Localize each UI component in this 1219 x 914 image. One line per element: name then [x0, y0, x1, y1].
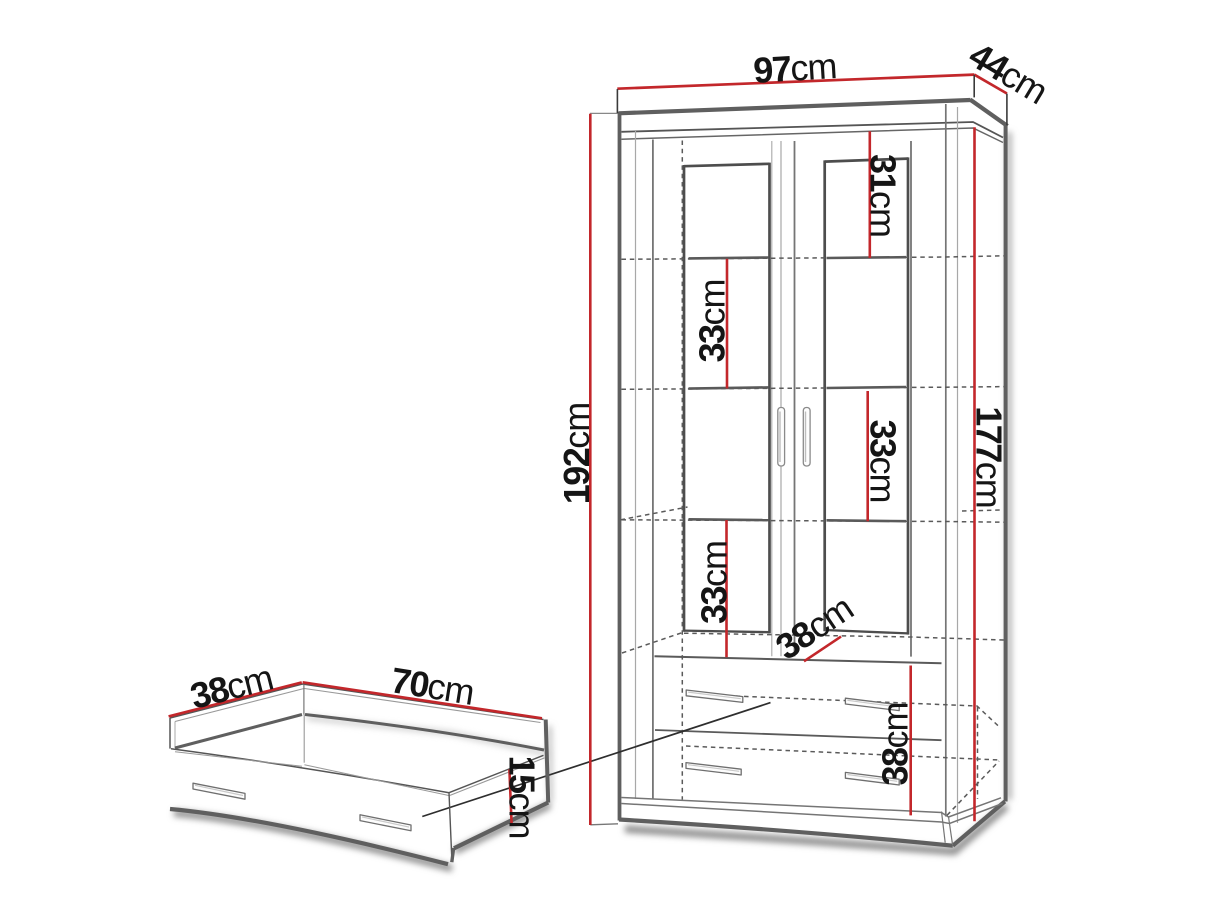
- svg-text:15cm: 15cm: [502, 755, 543, 838]
- svg-text:31cm: 31cm: [863, 154, 904, 237]
- svg-text:192cm: 192cm: [556, 403, 597, 505]
- svg-text:177cm: 177cm: [969, 406, 1010, 508]
- svg-text:33cm: 33cm: [863, 419, 904, 502]
- svg-text:33cm: 33cm: [693, 541, 734, 624]
- svg-text:97cm: 97cm: [752, 45, 837, 91]
- svg-text:33cm: 33cm: [691, 279, 732, 362]
- svg-text:38cm: 38cm: [874, 702, 915, 785]
